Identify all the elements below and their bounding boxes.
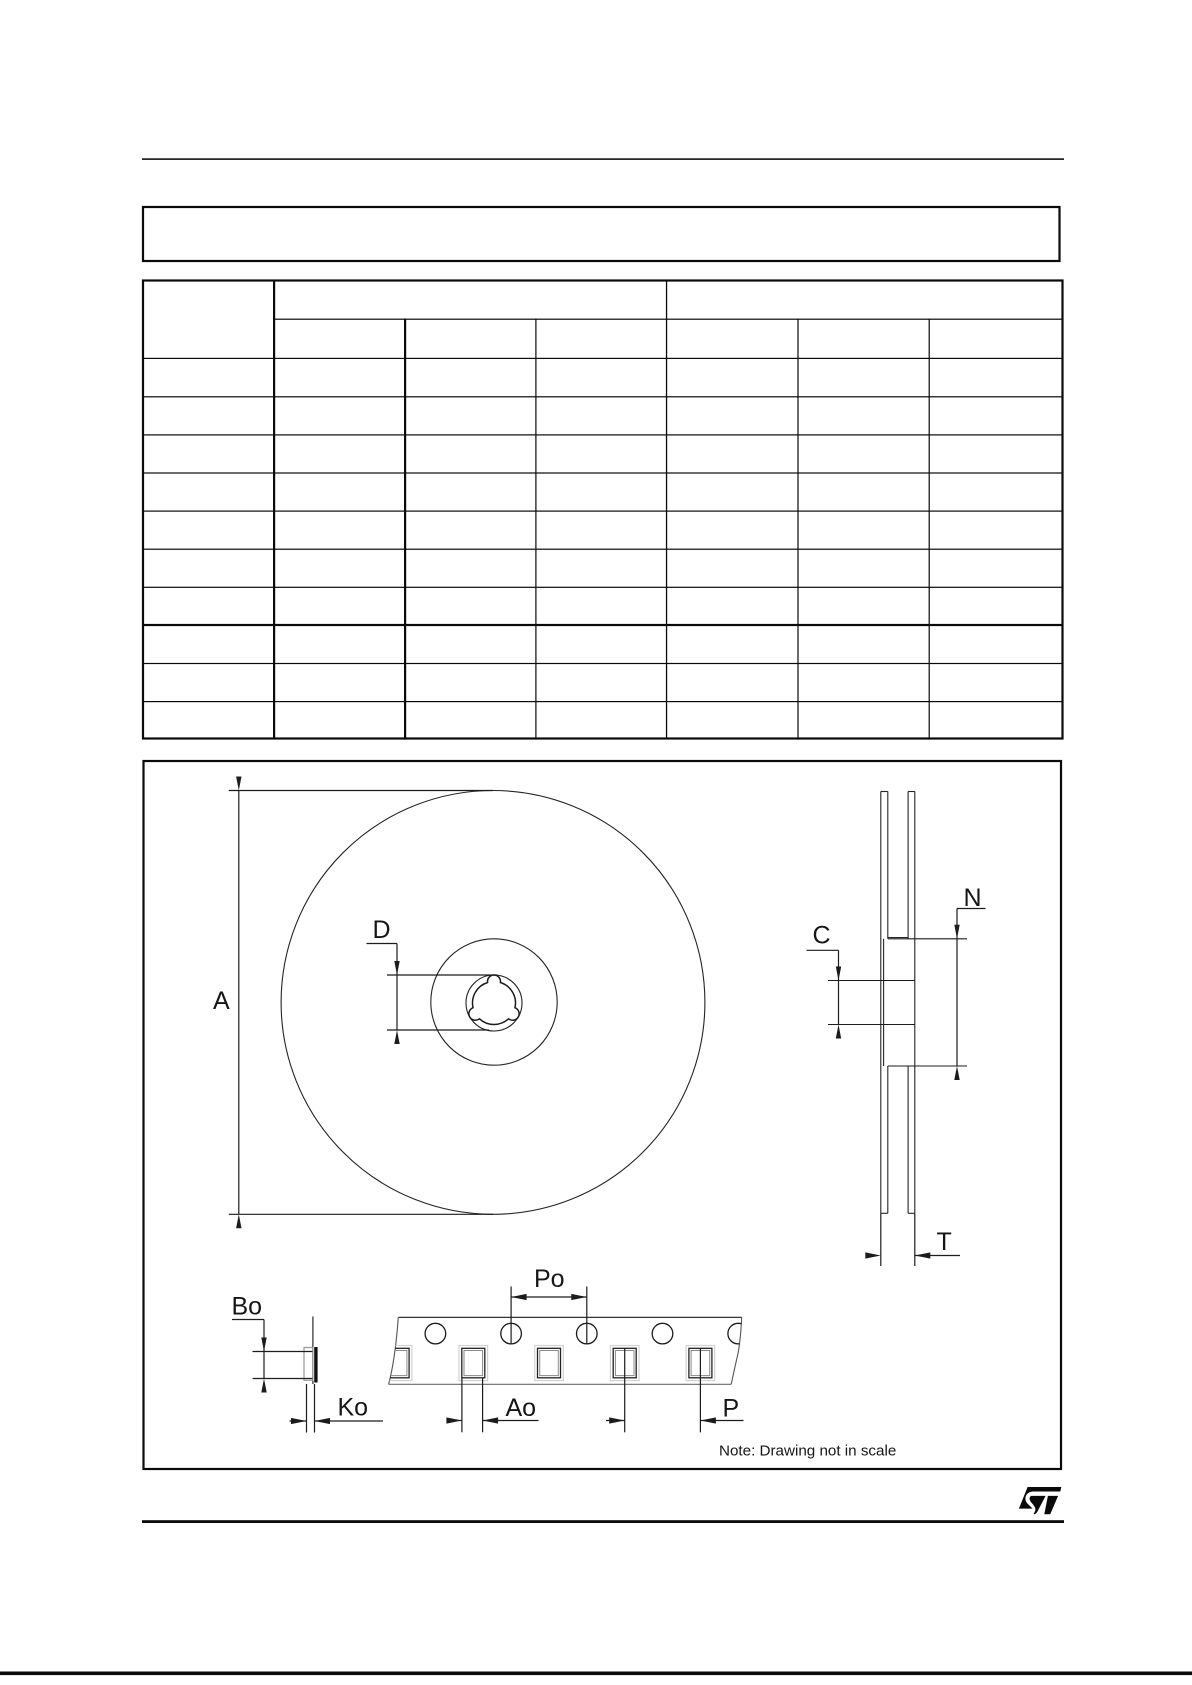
svg-text:C: C <box>813 922 831 950</box>
svg-text:Note: Drawing not in scale: Note: Drawing not in scale <box>719 1443 896 1460</box>
svg-text:N: N <box>964 884 982 912</box>
svg-text:Ao: Ao <box>506 1394 537 1422</box>
svg-text:A: A <box>213 987 230 1015</box>
svg-text:Ko: Ko <box>338 1393 369 1421</box>
svg-text:P: P <box>723 1394 740 1422</box>
svg-text:Bo: Bo <box>232 1293 263 1321</box>
svg-text:T: T <box>937 1228 952 1256</box>
svg-text:Po: Po <box>534 1265 565 1293</box>
svg-text:D: D <box>373 916 391 944</box>
